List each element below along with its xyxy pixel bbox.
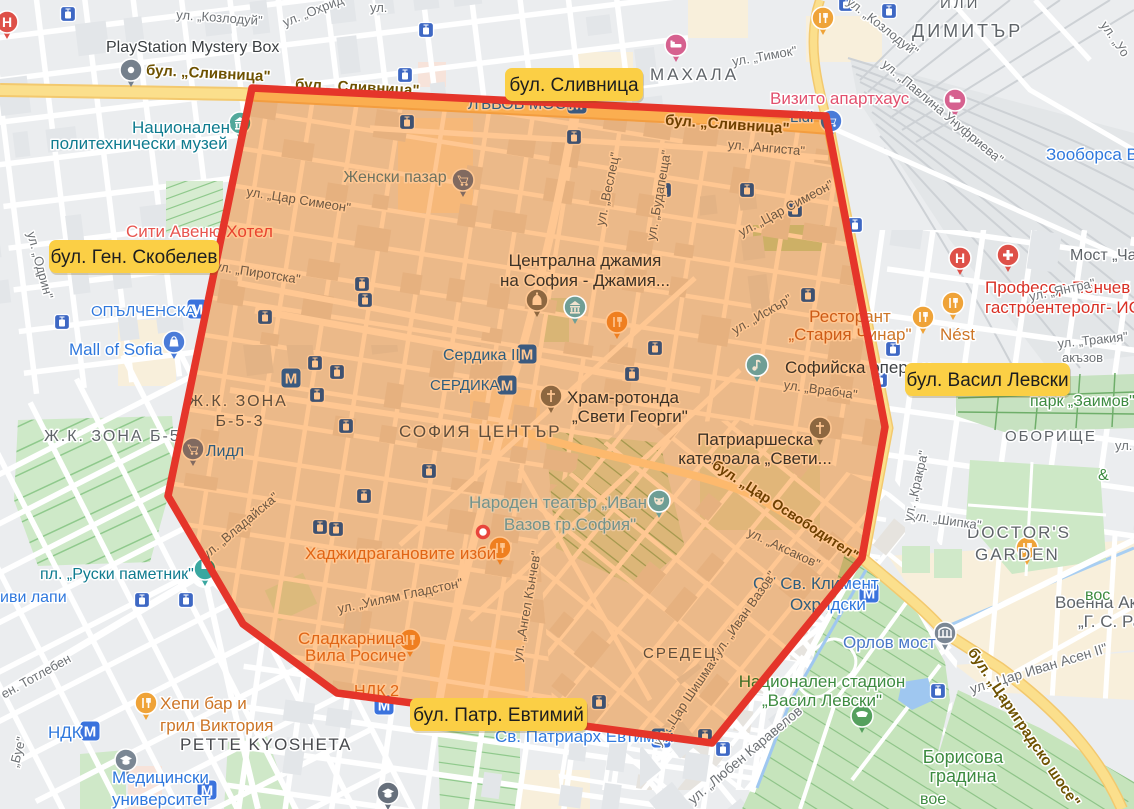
svg-text:GARDEN: GARDEN <box>975 545 1060 564</box>
svg-text:DOCTOR'S: DOCTOR'S <box>967 523 1071 542</box>
svg-text:градина: градина <box>929 766 997 786</box>
svg-text:университет: университет <box>112 790 210 809</box>
svg-text:Народен театър „Иван: Народен театър „Иван <box>469 493 647 512</box>
svg-text:вос: вос <box>1085 587 1110 604</box>
svg-text:бул. Васил Левски: бул. Васил Левски <box>906 370 1068 391</box>
svg-text:H: H <box>955 250 965 266</box>
svg-text:ОБОРИЩЕ: ОБОРИЩЕ <box>1005 428 1097 445</box>
svg-text:Орлов мост: Орлов мост <box>843 633 936 652</box>
svg-text:бул. Сливница: бул. Сливница <box>509 75 639 96</box>
svg-text:пл. „Руски паметник": пл. „Руски паметник" <box>40 566 194 583</box>
svg-text:PETTE KYOSHETA: PETTE KYOSHETA <box>180 735 352 754</box>
svg-text:грил Виктория: грил Виктория <box>160 716 273 735</box>
svg-text:бул. Ген. Скобелев: бул. Ген. Скобелев <box>51 247 218 268</box>
svg-text:Визито апартхаус: Визито апартхаус <box>770 89 910 108</box>
svg-text:ОПЪЛЧЕНСКА: ОПЪЛЧЕНСКА <box>91 303 196 320</box>
svg-text:„Васил Левски": „Васил Левски" <box>762 691 882 710</box>
svg-text:Зооборса Ве: Зооборса Ве <box>1046 145 1134 164</box>
svg-text:Борисова: Борисова <box>923 747 1004 767</box>
svg-text:Nést: Nést <box>940 325 975 344</box>
svg-text:Мост „Ча: Мост „Ча <box>1070 247 1134 264</box>
svg-text:Mall of Sofia: Mall of Sofia <box>69 340 163 359</box>
svg-text:M: M <box>84 724 97 741</box>
svg-text:ДИМИТЪР: ДИМИТЪР <box>912 21 1023 41</box>
svg-text:H: H <box>2 14 12 30</box>
svg-text:Вазов гр.София": Вазов гр.София" <box>504 515 636 534</box>
svg-text:бул. Патр. Евтимий: бул. Патр. Евтимий <box>413 705 584 726</box>
svg-text:Медицински: Медицински <box>112 768 209 787</box>
svg-text:Хепи бар и: Хепи бар и <box>160 694 247 713</box>
svg-text:ул.: ул. <box>370 0 387 15</box>
svg-text:Ж.К. ЗОНА Б-5: Ж.К. ЗОНА Б-5 <box>44 428 181 445</box>
svg-text:вое: вое <box>920 791 946 808</box>
svg-text:PlayStation Mystery Box: PlayStation Mystery Box <box>106 39 279 56</box>
svg-text:ИЛИ: ИЛИ <box>940 0 980 12</box>
svg-text:&: & <box>1098 467 1109 484</box>
svg-text:политехнически музей: политехнически музей <box>50 134 227 153</box>
svg-text:иви лапи: иви лапи <box>0 589 67 606</box>
svg-text:МАХАЛА: МАХАЛА <box>650 65 739 84</box>
svg-text:ул.: ул. <box>1115 438 1132 453</box>
svg-text:НДК: НДК <box>48 723 82 742</box>
svg-text:акъзов: акъзов <box>1062 350 1103 365</box>
svg-text:гастроентеролг- ИС: гастроентеролг- ИС <box>985 298 1134 317</box>
svg-text:„Г. С. Ра: „Г. С. Ра <box>1078 612 1134 631</box>
